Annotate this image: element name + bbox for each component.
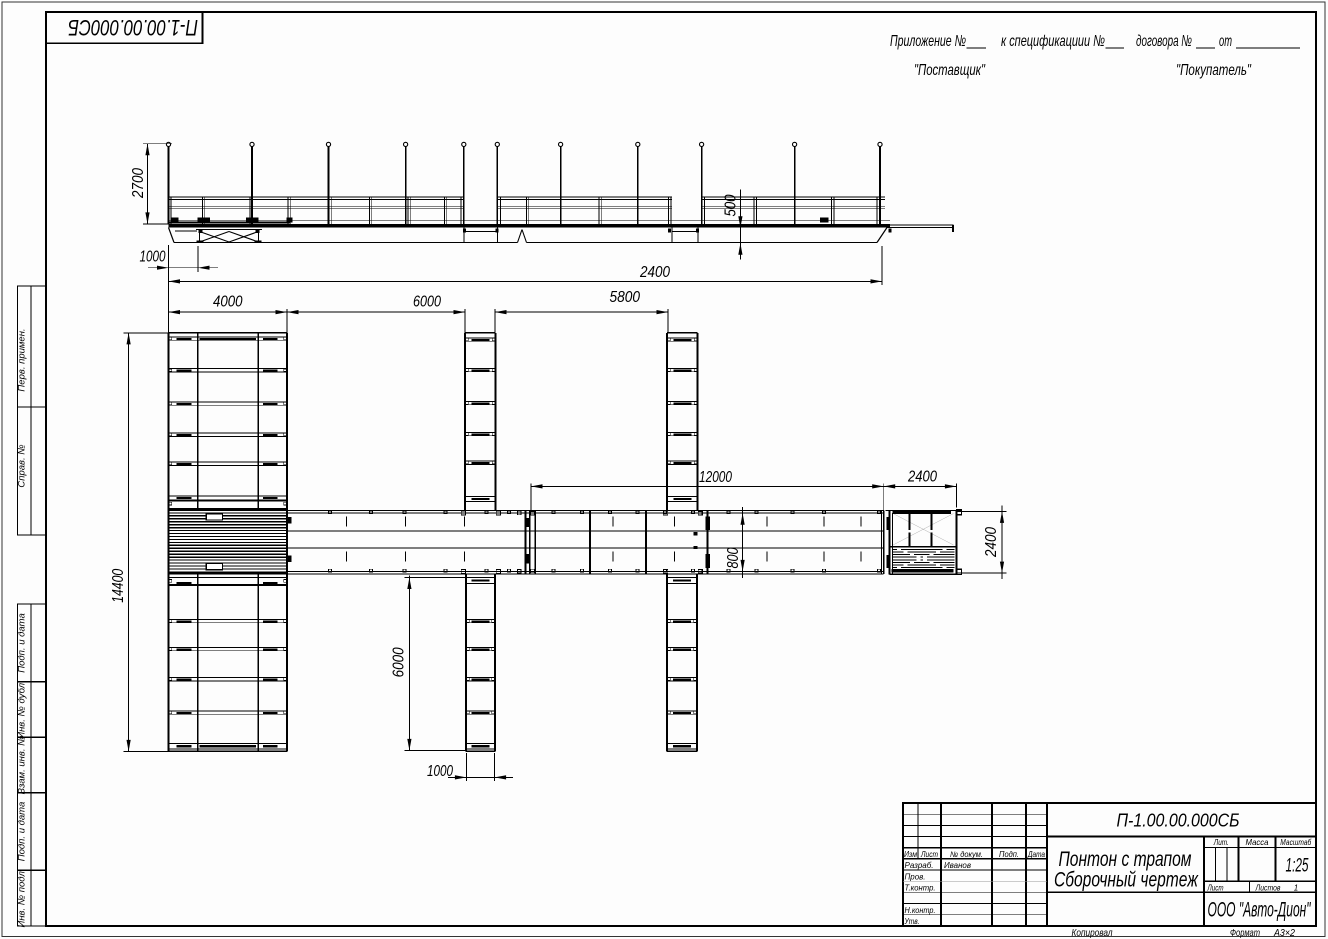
svg-text:Иванов: Иванов <box>944 861 971 870</box>
svg-text:Перв. примен.: Перв. примен. <box>17 328 28 391</box>
svg-text:Масштаб: Масштаб <box>1280 838 1311 847</box>
svg-text:2400: 2400 <box>983 527 1000 558</box>
svg-text:Лит.: Лит. <box>1213 838 1229 847</box>
svg-text:Подп. и дата: Подп. и дата <box>17 802 28 861</box>
svg-text:14400: 14400 <box>110 569 127 603</box>
svg-text:2400: 2400 <box>639 264 670 281</box>
svg-text:Взам. инв. №: Взам. инв. № <box>17 736 28 795</box>
svg-text:П-1.00.00.000СБ: П-1.00.00.000СБ <box>1117 811 1240 831</box>
svg-text:Разраб.: Разраб. <box>905 861 934 870</box>
svg-text:2700: 2700 <box>130 168 147 199</box>
svg-text:Инв. № дубл.: Инв. № дубл. <box>17 680 28 738</box>
svg-text:12000: 12000 <box>699 469 732 486</box>
svg-text:Подп. и дата: Подп. и дата <box>17 613 28 672</box>
svg-text:Подп.: Подп. <box>999 850 1019 859</box>
svg-text:№ докум.: № докум. <box>950 850 983 859</box>
svg-text:6000: 6000 <box>390 647 407 677</box>
svg-text:договора №: договора № <box>1136 33 1192 50</box>
svg-text:5800: 5800 <box>610 289 641 306</box>
svg-text:Масса: Масса <box>1246 838 1270 847</box>
svg-text:А3×2: А3×2 <box>1273 927 1295 939</box>
svg-text:Дата: Дата <box>1027 850 1045 859</box>
svg-text:1:25: 1:25 <box>1286 856 1309 877</box>
svg-text:"Покупатель": "Покупатель" <box>1176 62 1252 79</box>
svg-text:Сборочный чертеж: Сборочный чертеж <box>1054 868 1199 892</box>
svg-text:500: 500 <box>722 194 739 216</box>
svg-text:Приложение №: Приложение № <box>890 33 966 50</box>
svg-text:6000: 6000 <box>413 294 441 311</box>
svg-text:от: от <box>1219 33 1232 50</box>
svg-text:1000: 1000 <box>140 249 166 266</box>
svg-text:"Поставщик": "Поставщик" <box>914 62 986 79</box>
svg-text:Н.контр.: Н.контр. <box>905 906 936 915</box>
svg-text:Инв. № подл.: Инв. № подл. <box>17 869 28 928</box>
svg-text:Формат: Формат <box>1230 927 1260 939</box>
svg-text:П-1.00.00.000СБ: П-1.00.00.000СБ <box>68 15 198 40</box>
svg-text:Листов: Листов <box>1255 883 1281 892</box>
svg-text:1: 1 <box>1294 883 1298 892</box>
svg-text:Копировал: Копировал <box>1072 927 1113 939</box>
svg-text:Пров.: Пров. <box>905 872 926 881</box>
svg-text:ООО "Авто-Дион": ООО "Авто-Дион" <box>1208 899 1312 922</box>
svg-text:1000: 1000 <box>427 763 453 780</box>
svg-text:к спецификациии №: к спецификациии № <box>1001 33 1105 50</box>
svg-text:Лист: Лист <box>1207 883 1224 892</box>
svg-text:Справ. №: Справ. № <box>17 444 28 487</box>
svg-text:Т.контр.: Т.контр. <box>905 884 936 893</box>
svg-text:2400: 2400 <box>907 469 937 486</box>
svg-text:4000: 4000 <box>213 294 243 311</box>
svg-text:Утв.: Утв. <box>904 917 920 926</box>
svg-text:Лист: Лист <box>920 850 938 859</box>
svg-text:Изм: Изм <box>904 850 917 859</box>
svg-text:800: 800 <box>725 547 742 568</box>
